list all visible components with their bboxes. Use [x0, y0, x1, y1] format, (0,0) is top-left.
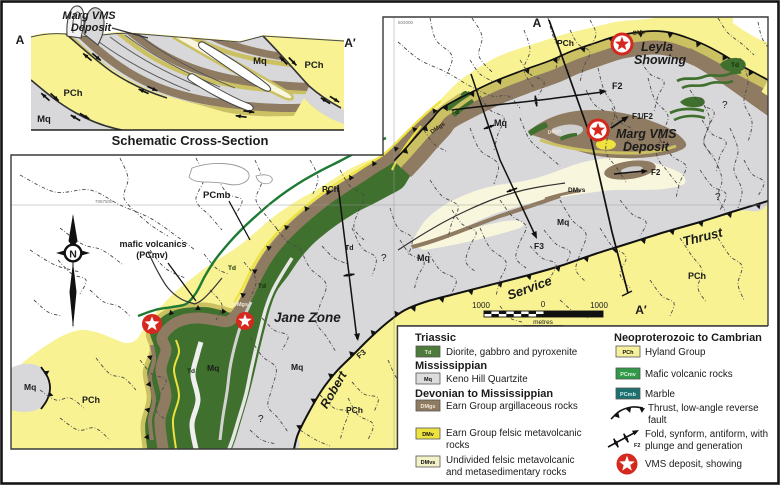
- svg-text:?: ?: [715, 192, 721, 203]
- svg-text:Earn Group argillaceous rocks: Earn Group argillaceous rocks: [446, 401, 578, 412]
- svg-text:PCh: PCh: [623, 350, 635, 356]
- svg-text:A′: A′: [344, 36, 356, 50]
- svg-text:Mq: Mq: [207, 363, 219, 373]
- svg-text:PCh: PCh: [305, 60, 324, 71]
- svg-text:Marg VMS: Marg VMS: [616, 127, 677, 141]
- svg-text:Fold, synform, antiform, with: Fold, synform, antiform, with: [645, 429, 768, 440]
- svg-text:Td: Td: [731, 62, 739, 69]
- svg-text:PCh: PCh: [322, 184, 339, 194]
- svg-text:Mq: Mq: [291, 362, 303, 372]
- svg-text:PCh: PCh: [688, 271, 706, 281]
- svg-text:N: N: [69, 249, 77, 261]
- svg-text:Mq: Mq: [24, 382, 36, 392]
- svg-text:PCmb: PCmb: [620, 392, 637, 398]
- svg-text:PCh: PCh: [346, 405, 363, 415]
- svg-text:plunge and generation: plunge and generation: [645, 441, 743, 452]
- svg-text:PCmb: PCmb: [203, 190, 231, 201]
- svg-text:metres: metres: [533, 319, 554, 326]
- svg-text:Mississippian: Mississippian: [415, 360, 487, 372]
- svg-text:Showing: Showing: [634, 53, 686, 67]
- svg-text:1000: 1000: [590, 301, 608, 310]
- svg-text:Deposit: Deposit: [71, 22, 113, 34]
- svg-text:Neoproterozoic to Cambrian: Neoproterozoic to Cambrian: [614, 332, 762, 344]
- svg-text:DMgs: DMgs: [421, 404, 436, 410]
- svg-text:Schematic Cross-Section: Schematic Cross-Section: [112, 133, 269, 148]
- svg-text:Mq: Mq: [37, 114, 51, 125]
- svg-text:F2: F2: [634, 443, 640, 449]
- svg-text:Marg VMS: Marg VMS: [62, 10, 116, 22]
- svg-text:Mafic volcanic rocks: Mafic volcanic rocks: [645, 369, 733, 380]
- svg-text:Devonian to Mississippian: Devonian to Mississippian: [415, 388, 553, 400]
- svg-text:DMv: DMv: [422, 432, 435, 438]
- svg-text:Undivided felsic metavolcanic: Undivided felsic metavolcanic: [446, 455, 575, 466]
- svg-text:Marble: Marble: [645, 389, 675, 400]
- svg-text:PCmv: PCmv: [620, 372, 637, 378]
- svg-text:F3: F3: [534, 241, 544, 251]
- svg-text:?: ?: [381, 253, 387, 264]
- svg-text:rocks: rocks: [446, 440, 470, 451]
- svg-text:Thrust, low-angle reverse: Thrust, low-angle reverse: [648, 403, 759, 414]
- svg-text:Td: Td: [187, 368, 195, 375]
- svg-text:Deposit: Deposit: [623, 140, 670, 154]
- svg-text:Earn Group felsic metavolcanic: Earn Group felsic metavolcanic: [446, 428, 582, 439]
- svg-text:1000: 1000: [472, 301, 490, 310]
- svg-text:A′: A′: [635, 303, 647, 317]
- svg-text:Td: Td: [258, 283, 266, 290]
- svg-text:?: ?: [258, 414, 264, 425]
- svg-text:Mq: Mq: [417, 253, 430, 263]
- svg-text:Td: Td: [425, 350, 432, 356]
- svg-text:DMvs: DMvs: [568, 187, 586, 194]
- svg-text:A: A: [533, 16, 542, 30]
- svg-text:VMS deposit, showing: VMS deposit, showing: [645, 459, 742, 470]
- svg-text:Mq: Mq: [424, 377, 432, 383]
- svg-text:(PCmv): (PCmv): [136, 250, 168, 260]
- svg-text:0: 0: [541, 300, 546, 309]
- svg-text:F1/F2: F1/F2: [632, 112, 653, 121]
- svg-text:F2: F2: [612, 81, 623, 91]
- svg-text:DMgs: DMgs: [233, 302, 248, 308]
- svg-text:Leyla: Leyla: [641, 40, 673, 54]
- svg-text:Triassic: Triassic: [415, 332, 456, 344]
- svg-text:PCh: PCh: [82, 395, 100, 405]
- svg-text:Hyland Group: Hyland Group: [645, 347, 706, 358]
- svg-text:Mq: Mq: [494, 118, 507, 128]
- svg-text:Keno Hill Quartzite: Keno Hill Quartzite: [446, 374, 528, 385]
- svg-text:Jane Zone: Jane Zone: [274, 310, 341, 325]
- svg-text:mafic volcanics: mafic volcanics: [119, 239, 186, 249]
- svg-text:502000: 502000: [398, 20, 414, 25]
- svg-text:Mq: Mq: [253, 56, 267, 67]
- svg-text:Td: Td: [345, 245, 354, 252]
- svg-text:F2: F2: [651, 168, 661, 177]
- svg-text:Td: Td: [451, 109, 459, 116]
- svg-text:Td: Td: [228, 265, 236, 272]
- svg-text:?: ?: [722, 100, 728, 111]
- svg-text:PCh: PCh: [557, 38, 574, 48]
- svg-text:and metasedimentary rocks: and metasedimentary rocks: [446, 467, 566, 478]
- svg-text:Diorite, gabbro and pyroxenite: Diorite, gabbro and pyroxenite: [446, 347, 578, 358]
- svg-text:DMvs: DMvs: [421, 460, 436, 466]
- svg-text:A: A: [16, 33, 25, 47]
- svg-text:fault: fault: [648, 415, 667, 426]
- svg-text:Mq: Mq: [557, 217, 569, 227]
- svg-text:PCh: PCh: [64, 88, 83, 99]
